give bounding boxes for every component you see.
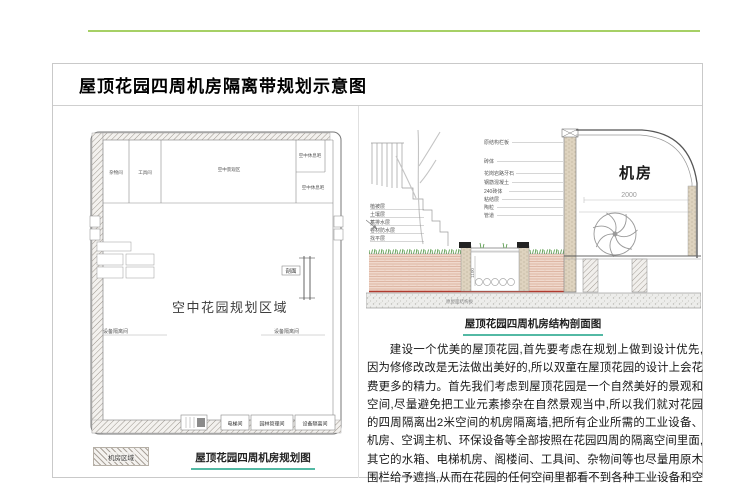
plan-diagram: 杂物间 工具间 空中景观区 空中休息吧 空中休息吧 (89, 128, 345, 440)
pier (632, 259, 647, 292)
page: 屋顶花园四周机房隔离带规划示意图 (0, 0, 734, 488)
iso-left-label: 设备隔离间 (103, 328, 128, 335)
plan-caption: 屋顶花园四周机房规划图 (153, 450, 353, 470)
wall-label-3: 钢筋混凝土 (484, 179, 509, 186)
wall-label-0: 原结构栏板 (484, 139, 509, 146)
title-bar: 屋顶花园四周机房隔离带规划示意图 (53, 64, 702, 106)
grass-layer (369, 247, 461, 254)
section-svg: 1100 机房 2000 (366, 128, 701, 313)
plan-room-topcenter-label: 空中景观区 (218, 166, 241, 173)
pier (583, 259, 598, 292)
wall-label-6: 陶粒 (484, 204, 494, 211)
section-caption-underline (463, 334, 603, 336)
plan-caption-text: 屋顶花园四周机房规划图 (195, 452, 311, 464)
machine-room: 机房 2000 (564, 130, 701, 292)
plan-room-right1-label: 空中休息吧 (299, 152, 322, 159)
grass-layer-right (529, 247, 564, 254)
layer-callouts: 植被层 土壤层 蓄排水层 卷材防水层 找平层 (370, 203, 424, 242)
wall-label-7: 管道 (484, 212, 494, 219)
curb-cap-left (459, 242, 471, 248)
wall-callouts: 原结构栏板 砖体 花岗岩路牙石 钢筋混凝土 240砖体 粘结层 陶粒 管道 (484, 139, 563, 219)
plan-room-top2-label: 工具间 (138, 169, 152, 176)
machine-room-label: 机房 (619, 164, 653, 182)
layer-label-3: 卷材防水层 (370, 227, 395, 234)
column-divider (358, 106, 359, 478)
layer-label-1: 土壤层 (370, 211, 385, 218)
plan-room-garden-mgmt-label: 园林管理间 (259, 421, 284, 428)
description-paragraph: 建设一个优美的屋顶花园,首先要考虑在规划上做到设计优先,因为修修改改是无法做出美… (367, 341, 703, 473)
plan-svg: 杂物间 工具间 空中景观区 空中休息吧 空中休息吧 (89, 128, 345, 440)
plan-room-right2-label: 空中休息吧 (302, 184, 325, 191)
drainage-trench: 1100 (459, 242, 529, 291)
wall-label-4: 240砖体 (484, 188, 502, 195)
iso-right-label: 设备隔离间 (274, 328, 299, 335)
page-title: 屋顶花园四周机房隔离带规划示意图 (53, 72, 367, 97)
layer-label-4: 找平层 (370, 235, 385, 242)
plan-room-top1-label: 杂物间 (109, 169, 123, 176)
plan-area-label: 空中花园规划区域 (172, 300, 288, 315)
legend-machine-area: 机房区域 (93, 447, 149, 466)
section-diagram: 1100 机房 2000 (366, 128, 701, 313)
section-mark-label: 剖面 (285, 267, 297, 275)
isolation-wall (562, 129, 578, 292)
plan-caption-underline (191, 468, 315, 470)
wall-label-1: 砖体 (484, 158, 494, 165)
curb-cap-right (517, 242, 529, 248)
slab-label: 原屋面结构板 (446, 298, 473, 305)
plan-outer-wall (91, 132, 341, 434)
wall-label-2: 花岗岩路牙石 (484, 170, 514, 177)
layer-label-2: 蓄排水层 (370, 219, 390, 226)
plan-bottom-rooms: 电梯间 园林管理间 设备隔离间 (181, 415, 335, 430)
plan-room-elevator-label: 电梯间 (227, 421, 242, 428)
soil-left (369, 254, 461, 291)
section-caption-text: 屋顶花园四周机房结构剖面图 (465, 318, 602, 330)
soil-right (529, 254, 564, 291)
section-caption: 屋顶花园四周机房结构剖面图 (383, 316, 683, 336)
wall-label-5: 粘结层 (484, 196, 499, 203)
plan-room-iso-bottom-label: 设备隔离间 (302, 421, 327, 428)
layer-label-0: 植被层 (370, 203, 385, 210)
tree-outline (396, 130, 440, 244)
legend-label: 机房区域 (107, 452, 135, 462)
structural-slab: 原屋面结构板 (366, 293, 701, 308)
top-accent-line (88, 30, 700, 32)
stair-block (197, 418, 205, 427)
trench-depth-dim: 1100 (470, 268, 475, 278)
content-card: 屋顶花园四周机房隔离带规划示意图 (52, 63, 703, 478)
fan-icon (593, 213, 638, 257)
machine-room-width-dim: 2000 (621, 192, 637, 199)
